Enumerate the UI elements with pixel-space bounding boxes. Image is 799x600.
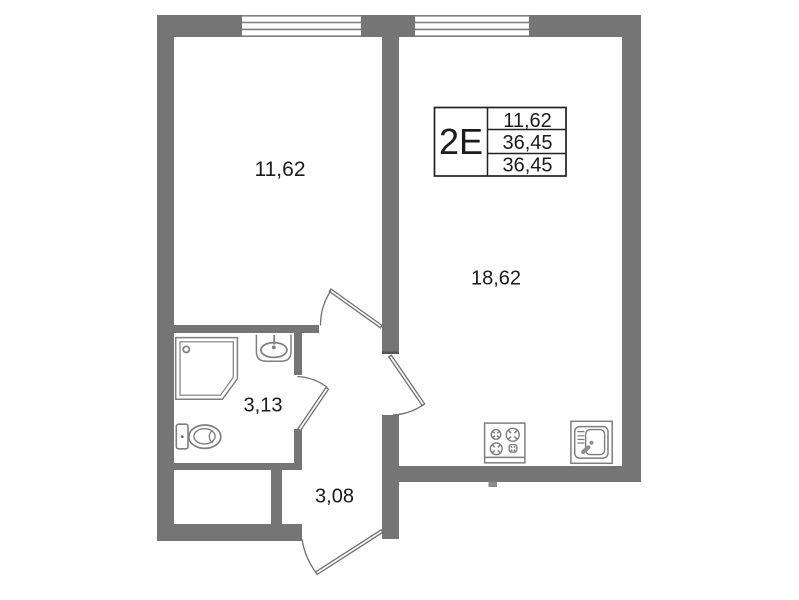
- svg-text:3,08: 3,08: [315, 486, 354, 508]
- svg-text:3,13: 3,13: [244, 395, 283, 417]
- svg-text:36,45: 36,45: [502, 132, 552, 154]
- svg-text:18,62: 18,62: [471, 268, 521, 290]
- svg-text:11,62: 11,62: [503, 110, 552, 132]
- svg-text:11,62: 11,62: [255, 158, 306, 181]
- svg-text:36,45: 36,45: [502, 154, 552, 176]
- svg-text:2Е: 2Е: [439, 121, 483, 162]
